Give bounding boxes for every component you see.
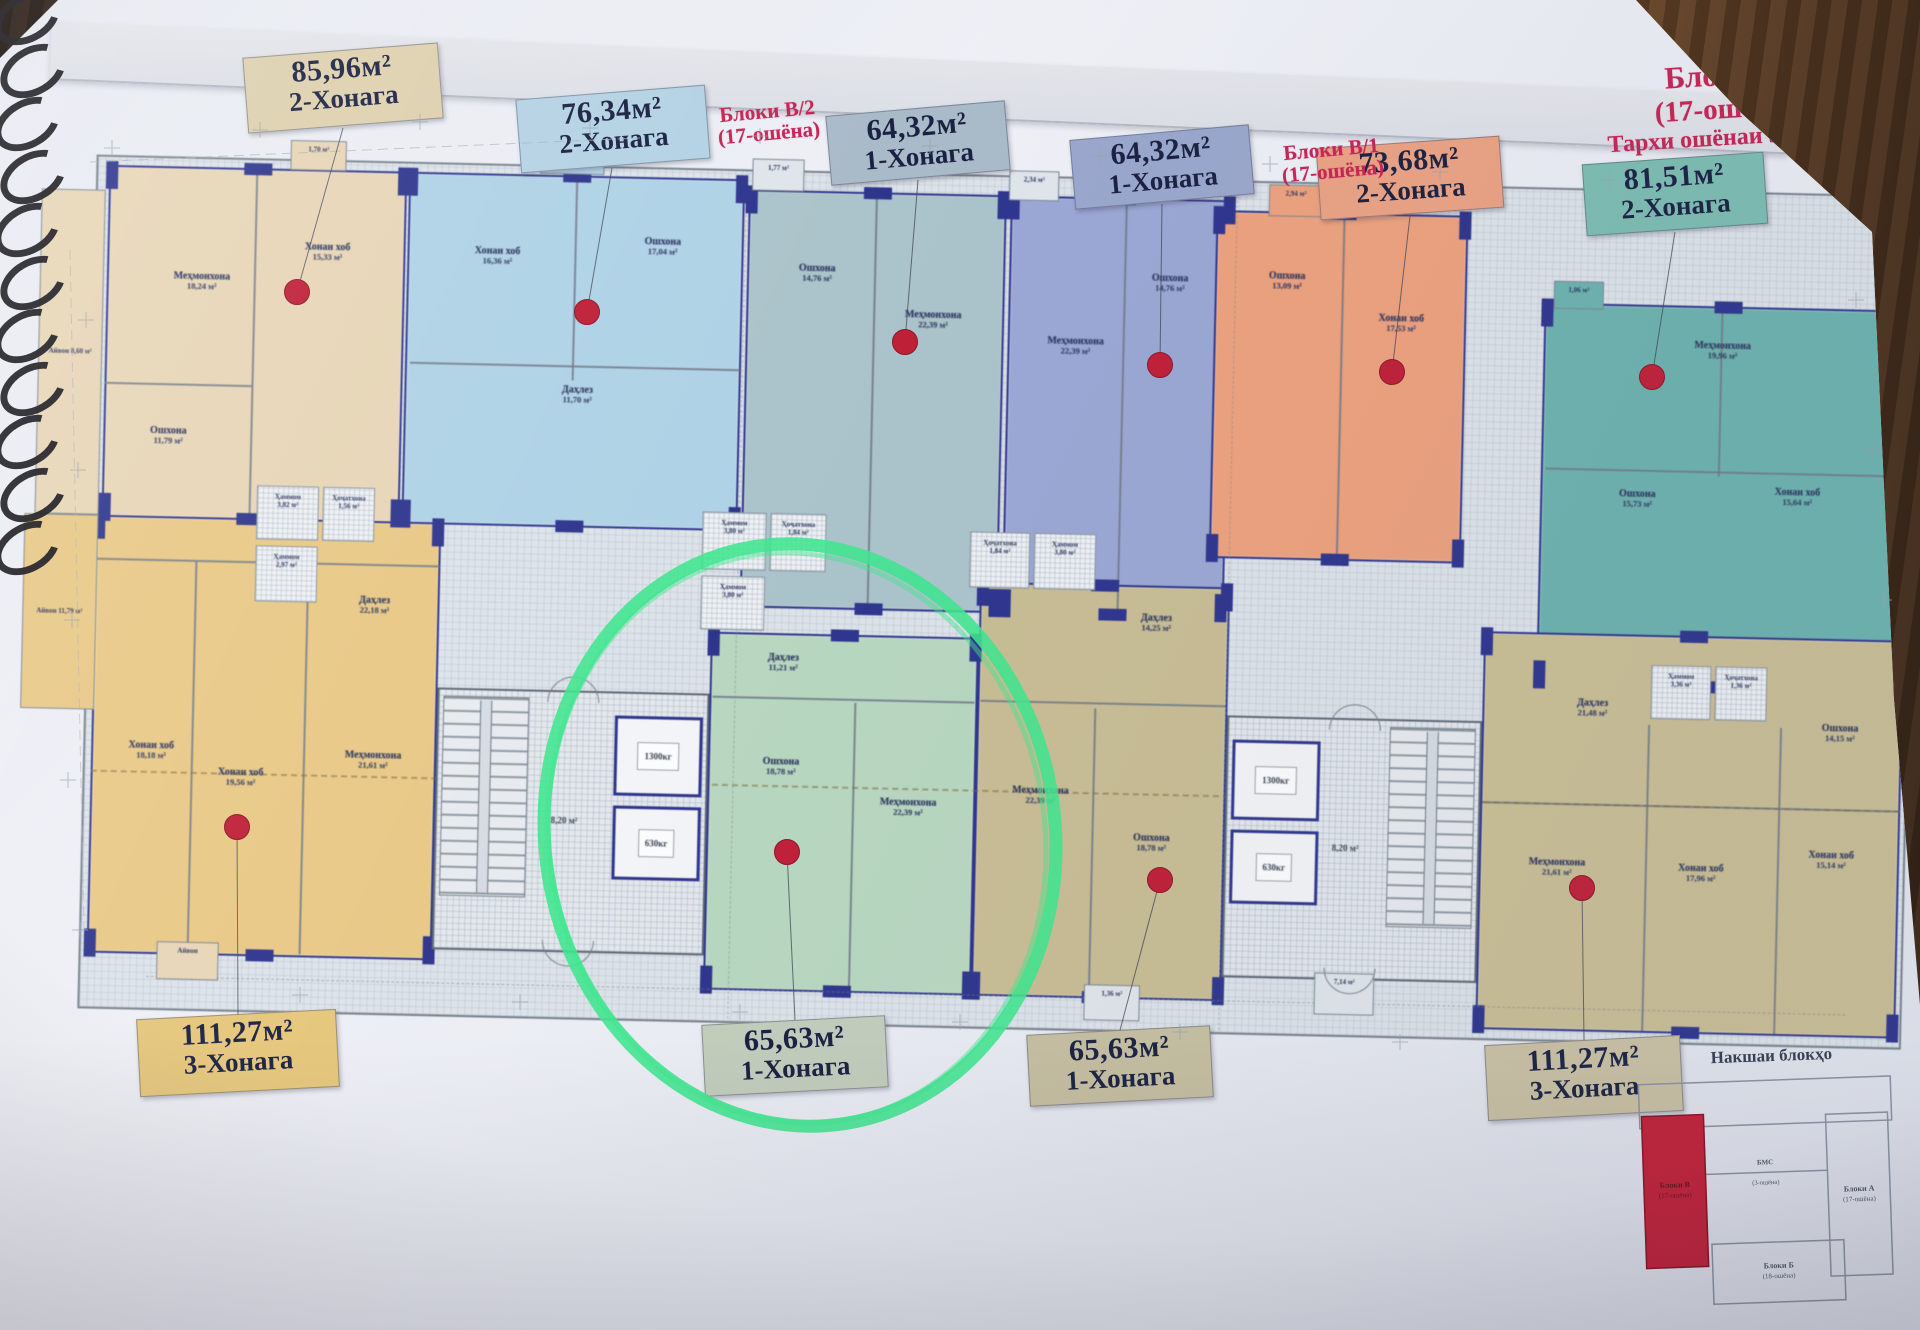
- area-tag-t8596: 85,96м²2-Хонага: [242, 42, 443, 133]
- area-tag-t6432b: 64,32м²1-Хонага: [1069, 124, 1254, 209]
- paper-sheet: Айвон 8,60 м²Айвон 11,79 м²Меҳмонхона18,…: [0, 0, 1920, 1330]
- area-tag-t6563R: 65,63м²1-Хонага: [1026, 1025, 1214, 1107]
- area-tag-t8151: 81,51м²2-Хонага: [1582, 152, 1769, 237]
- key-plan-highlight-floors: (17-ошёна): [1659, 1191, 1693, 1200]
- key-plan-diagram: Блоки В (17-ошёна) Блоки А (17-ошёна) Бл…: [1628, 1061, 1920, 1329]
- key-plan-highlight-name: Блоки В: [1660, 1180, 1691, 1190]
- area-tag-t11127L: 111,27м²3-Хонага: [136, 1009, 340, 1097]
- key-plan-block-a-floors: (17-ошёна): [1843, 1195, 1877, 1204]
- area-tag-t6432a: 64,32м²1-Хонага: [825, 100, 1010, 185]
- key-plan-link-floors: (3-ошёна): [1752, 1179, 1779, 1187]
- key-plan-link-name: БМС: [1757, 1158, 1774, 1167]
- floorplan-photo: Айвон 8,60 м²Айвон 11,79 м²Меҳмонхона18,…: [0, 0, 1920, 1330]
- key-plan-block-a-name: Блоки А: [1844, 1184, 1875, 1194]
- key-plan: Накшаи блокҳо Блоки В (17-ошёна) Блоки А…: [1627, 1041, 1920, 1330]
- area-tag-t6563L: 65,63м²1-Хонага: [701, 1015, 889, 1097]
- area-tag-t7634: 76,34м²2-Хонага: [515, 85, 710, 174]
- key-plan-block-b-floors: (18-ошёна): [1763, 1271, 1797, 1280]
- key-plan-block-b-name: Блоки Б: [1763, 1260, 1793, 1270]
